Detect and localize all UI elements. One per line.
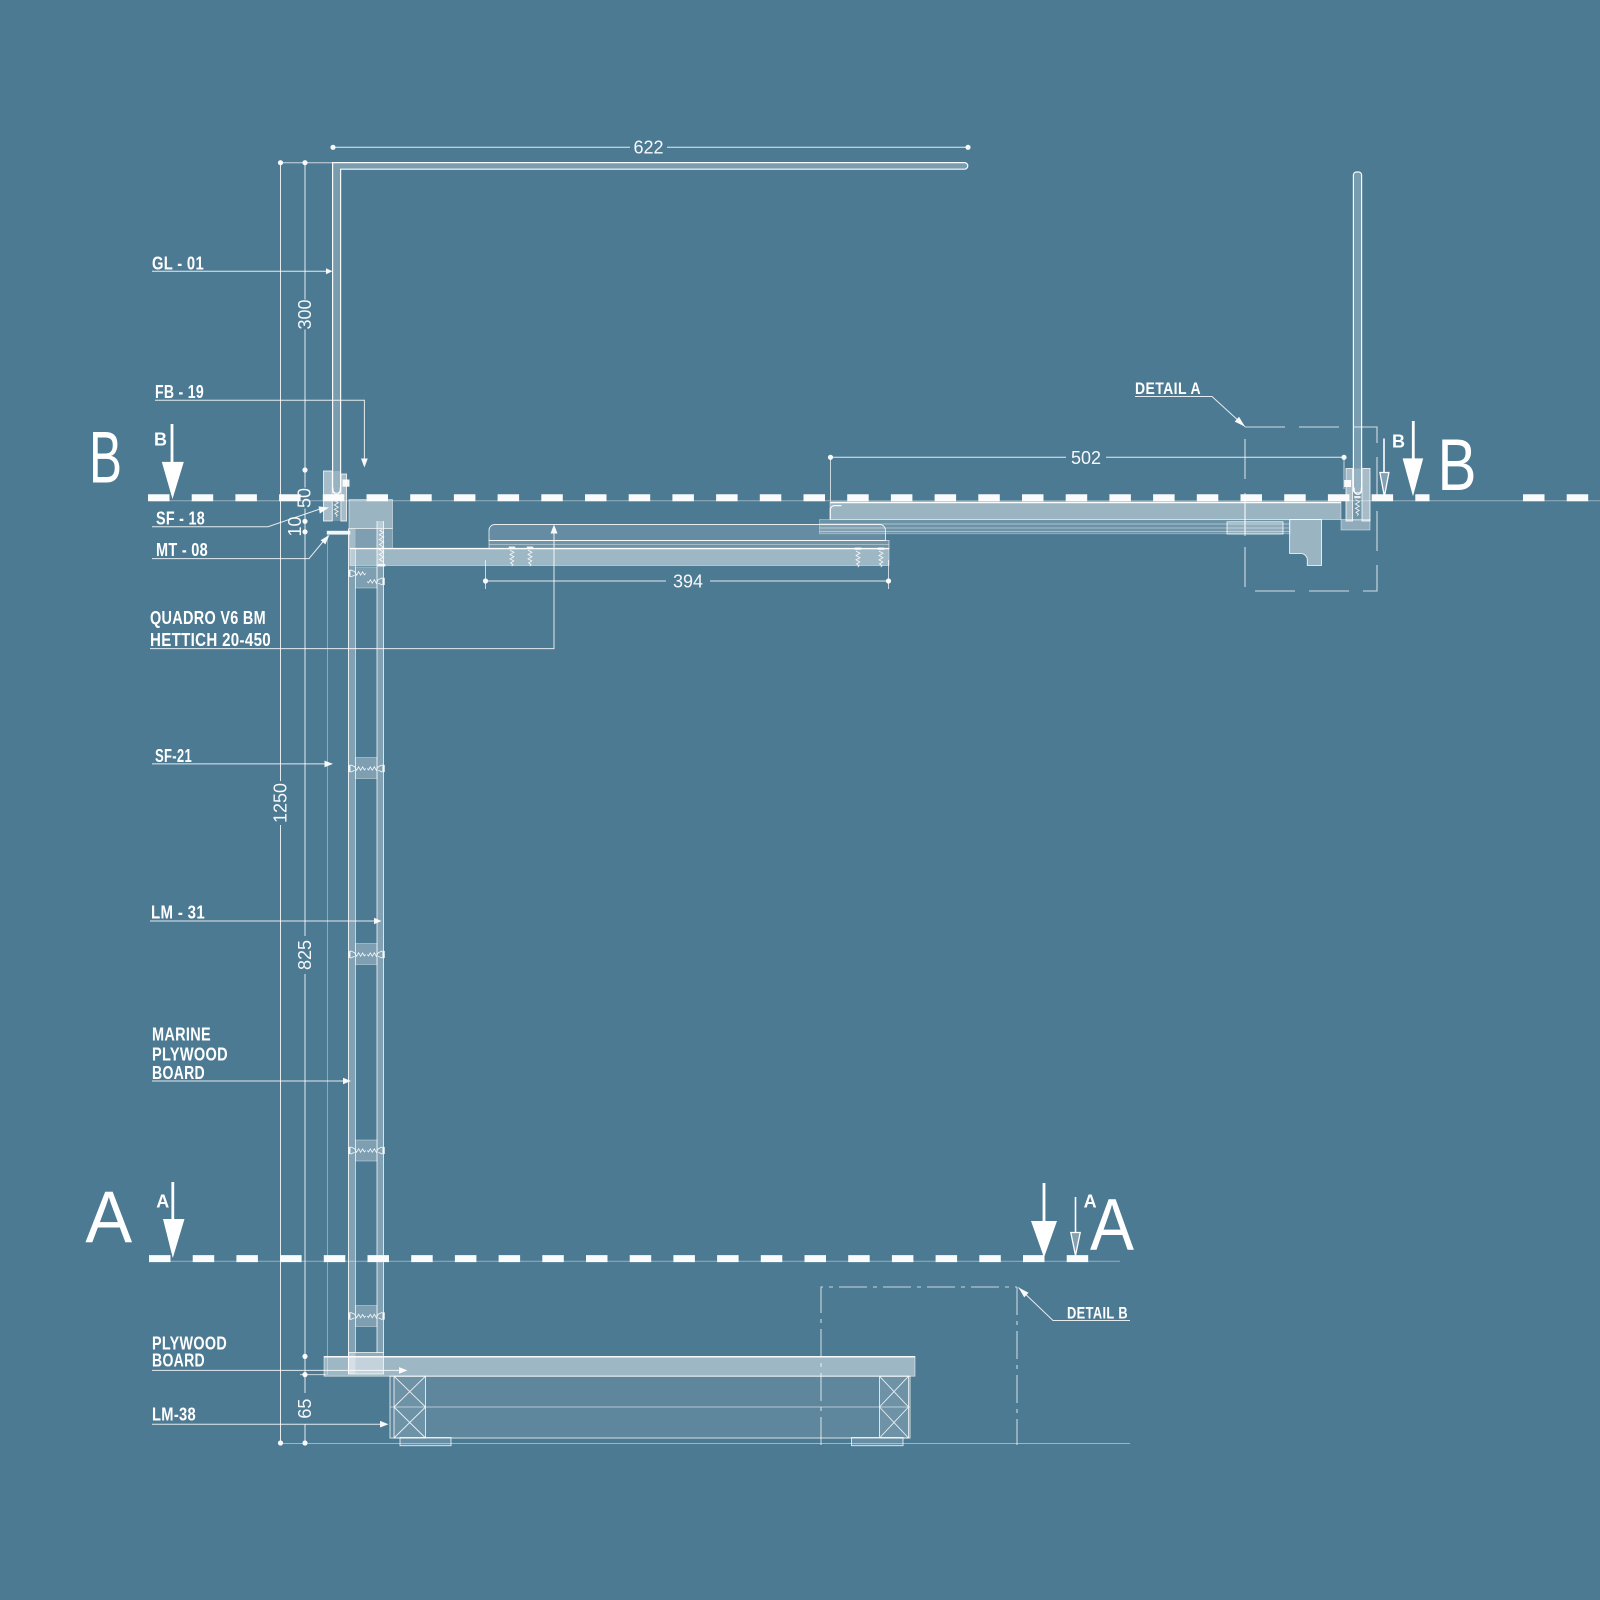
svg-text:65: 65 xyxy=(295,1399,315,1419)
svg-text:B: B xyxy=(1438,425,1477,506)
svg-text:502: 502 xyxy=(1071,448,1101,468)
svg-text:SF - 18: SF - 18 xyxy=(156,508,205,529)
svg-text:DETAIL B: DETAIL B xyxy=(1067,1305,1128,1323)
svg-text:HETTICH 20-450: HETTICH 20-450 xyxy=(150,629,271,650)
svg-text:B: B xyxy=(89,418,122,499)
svg-text:DETAIL A: DETAIL A xyxy=(1135,380,1201,398)
svg-text:QUADRO V6 BM: QUADRO V6 BM xyxy=(150,607,266,628)
svg-text:FB - 19: FB - 19 xyxy=(155,381,204,402)
svg-text:A: A xyxy=(85,1178,132,1259)
svg-text:LM - 31: LM - 31 xyxy=(151,902,205,923)
svg-text:A: A xyxy=(156,1192,169,1212)
svg-text:1250: 1250 xyxy=(271,783,291,823)
svg-text:SF-21: SF-21 xyxy=(155,745,192,766)
svg-text:300: 300 xyxy=(295,299,315,329)
svg-text:GL - 01: GL - 01 xyxy=(152,253,204,274)
svg-text:825: 825 xyxy=(295,940,315,970)
svg-text:B: B xyxy=(1392,432,1405,452)
svg-text:B: B xyxy=(154,430,167,450)
svg-text:394: 394 xyxy=(673,572,703,592)
svg-text:622: 622 xyxy=(633,138,663,158)
svg-text:MT - 08: MT - 08 xyxy=(156,539,208,560)
svg-text:LM-38: LM-38 xyxy=(152,1404,196,1425)
svg-text:MARINE: MARINE xyxy=(152,1024,211,1045)
svg-text:BOARD: BOARD xyxy=(152,1062,205,1083)
svg-text:BOARD: BOARD xyxy=(152,1350,205,1371)
svg-text:A: A xyxy=(1090,1185,1134,1266)
